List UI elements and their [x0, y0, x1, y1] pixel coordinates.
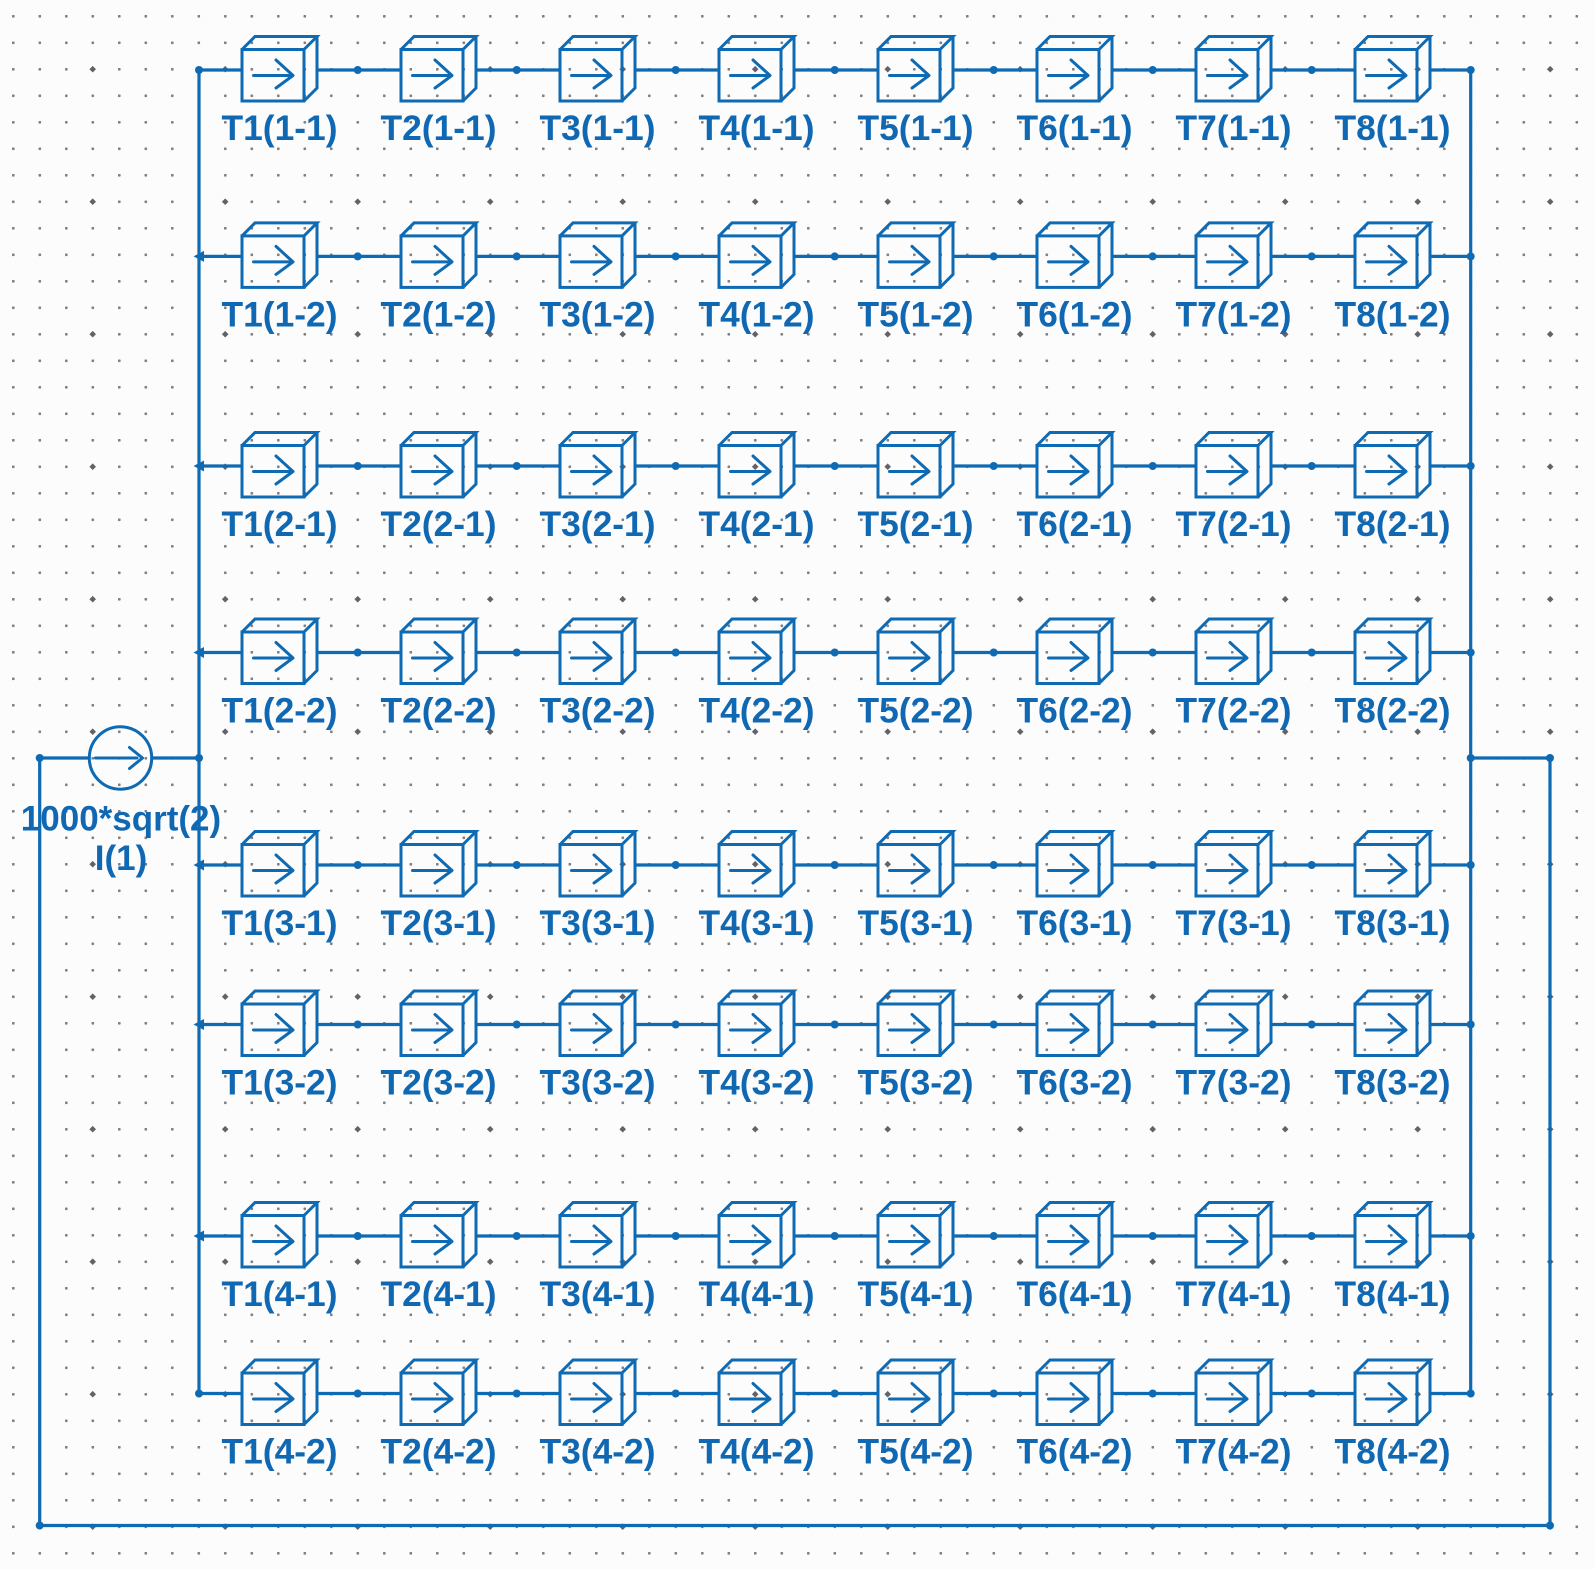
svg-text:T5(1-1): T5(1-1) — [857, 108, 973, 148]
svg-text:T2(3-1): T2(3-1) — [380, 903, 496, 943]
svg-text:T7(2-1): T7(2-1) — [1175, 504, 1291, 544]
svg-text:T6(2-1): T6(2-1) — [1016, 504, 1132, 544]
svg-text:T5(4-2): T5(4-2) — [857, 1432, 973, 1472]
svg-text:T7(1-2): T7(1-2) — [1175, 294, 1291, 334]
svg-text:T5(1-2): T5(1-2) — [857, 294, 973, 334]
svg-text:T3(4-1): T3(4-1) — [539, 1274, 655, 1314]
svg-text:T8(2-2): T8(2-2) — [1334, 691, 1450, 731]
svg-text:T5(4-1): T5(4-1) — [857, 1274, 973, 1314]
svg-text:T2(1-1): T2(1-1) — [380, 108, 496, 148]
svg-text:T6(1-1): T6(1-1) — [1016, 108, 1132, 148]
svg-text:T8(4-2): T8(4-2) — [1334, 1432, 1450, 1472]
svg-text:T6(3-2): T6(3-2) — [1016, 1063, 1132, 1103]
svg-text:T2(4-1): T2(4-1) — [380, 1274, 496, 1314]
svg-text:T7(1-1): T7(1-1) — [1175, 108, 1291, 148]
svg-text:T2(4-2): T2(4-2) — [380, 1432, 496, 1472]
svg-text:T1(3-2): T1(3-2) — [221, 1063, 337, 1103]
svg-text:T3(3-2): T3(3-2) — [539, 1063, 655, 1103]
svg-text:T1(2-1): T1(2-1) — [221, 504, 337, 544]
svg-text:T4(1-1): T4(1-1) — [698, 108, 814, 148]
svg-text:T3(1-2): T3(1-2) — [539, 294, 655, 334]
svg-text:T1(4-2): T1(4-2) — [221, 1432, 337, 1472]
svg-text:T1(2-2): T1(2-2) — [221, 691, 337, 731]
svg-text:T2(3-2): T2(3-2) — [380, 1063, 496, 1103]
svg-text:T7(4-2): T7(4-2) — [1175, 1432, 1291, 1472]
svg-text:T3(2-2): T3(2-2) — [539, 691, 655, 731]
svg-text:T1(1-1): T1(1-1) — [221, 108, 337, 148]
svg-text:T5(3-2): T5(3-2) — [857, 1063, 973, 1103]
svg-text:T4(3-1): T4(3-1) — [698, 903, 814, 943]
svg-text:T4(2-1): T4(2-1) — [698, 504, 814, 544]
svg-text:T3(1-1): T3(1-1) — [539, 108, 655, 148]
svg-text:T5(3-1): T5(3-1) — [857, 903, 973, 943]
svg-text:T8(1-1): T8(1-1) — [1334, 108, 1450, 148]
svg-text:T2(1-2): T2(1-2) — [380, 294, 496, 334]
svg-text:T1(3-1): T1(3-1) — [221, 903, 337, 943]
svg-text:T5(2-1): T5(2-1) — [857, 504, 973, 544]
svg-text:T8(2-1): T8(2-1) — [1334, 504, 1450, 544]
svg-text:T1(4-1): T1(4-1) — [221, 1274, 337, 1314]
svg-text:T6(4-1): T6(4-1) — [1016, 1274, 1132, 1314]
svg-text:T5(2-2): T5(2-2) — [857, 691, 973, 731]
svg-text:T6(3-1): T6(3-1) — [1016, 903, 1132, 943]
svg-text:T2(2-2): T2(2-2) — [380, 691, 496, 731]
svg-text:T3(3-1): T3(3-1) — [539, 903, 655, 943]
svg-text:T8(3-1): T8(3-1) — [1334, 903, 1450, 943]
svg-text:I(1): I(1) — [95, 839, 148, 878]
svg-text:T8(3-2): T8(3-2) — [1334, 1063, 1450, 1103]
svg-text:T1(1-2): T1(1-2) — [221, 294, 337, 334]
svg-text:T3(2-1): T3(2-1) — [539, 504, 655, 544]
svg-text:T4(1-2): T4(1-2) — [698, 294, 814, 334]
svg-text:T7(2-2): T7(2-2) — [1175, 691, 1291, 731]
svg-text:T6(4-2): T6(4-2) — [1016, 1432, 1132, 1472]
svg-text:T4(2-2): T4(2-2) — [698, 691, 814, 731]
svg-text:T4(3-2): T4(3-2) — [698, 1063, 814, 1103]
svg-text:T4(4-1): T4(4-1) — [698, 1274, 814, 1314]
svg-text:T6(1-2): T6(1-2) — [1016, 294, 1132, 334]
svg-text:T8(1-2): T8(1-2) — [1334, 294, 1450, 334]
svg-text:T7(3-1): T7(3-1) — [1175, 903, 1291, 943]
svg-text:T2(2-1): T2(2-1) — [380, 504, 496, 544]
svg-text:T6(2-2): T6(2-2) — [1016, 691, 1132, 731]
svg-text:T8(4-1): T8(4-1) — [1334, 1274, 1450, 1314]
svg-text:1000*sqrt(2): 1000*sqrt(2) — [21, 800, 221, 839]
svg-text:T4(4-2): T4(4-2) — [698, 1432, 814, 1472]
svg-text:T3(4-2): T3(4-2) — [539, 1432, 655, 1472]
svg-text:T7(4-1): T7(4-1) — [1175, 1274, 1291, 1314]
svg-text:T7(3-2): T7(3-2) — [1175, 1063, 1291, 1103]
